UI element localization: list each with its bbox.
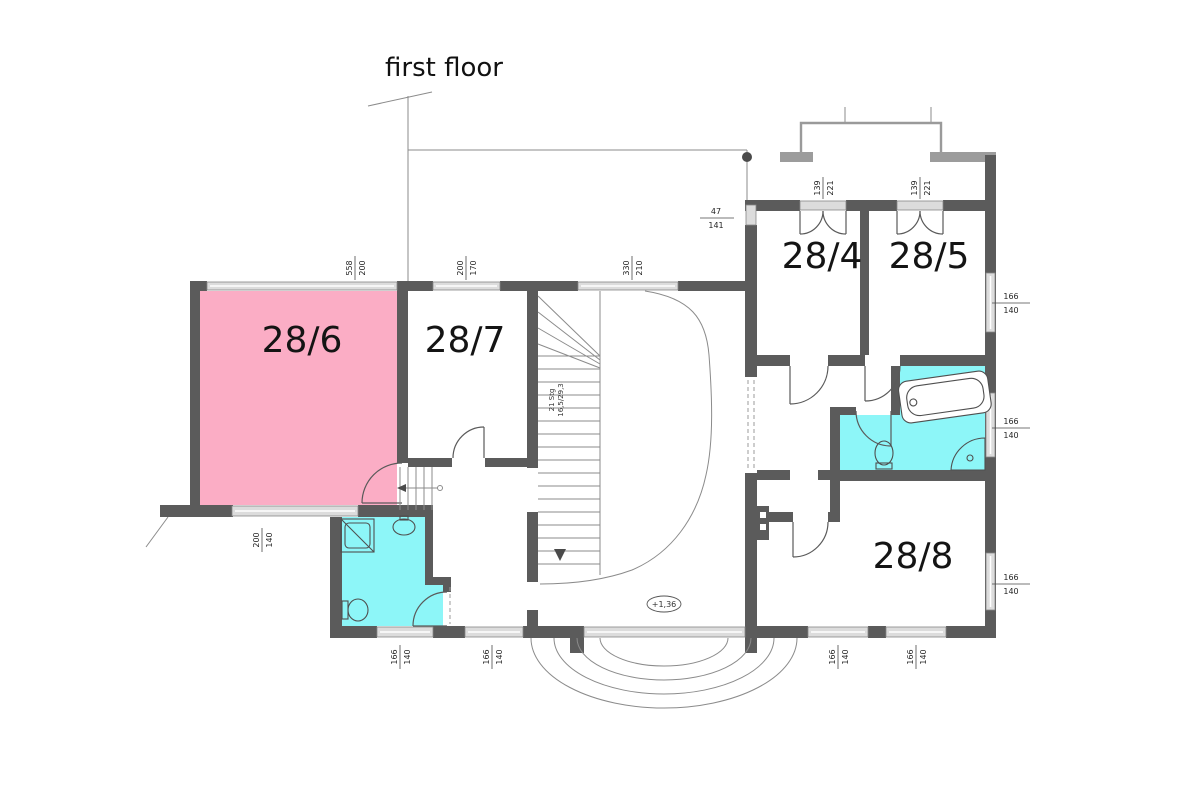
- door-swing-room288: [793, 522, 828, 557]
- svg-text:210: 210: [635, 260, 644, 275]
- wall-segment: [527, 291, 538, 468]
- door-swing-room287: [453, 427, 484, 458]
- svg-text:141: 141: [708, 221, 723, 230]
- wall-segment: [425, 517, 433, 581]
- svg-text:140: 140: [403, 649, 412, 664]
- dim-label: 200 170: [456, 256, 478, 280]
- french-door-threshold: [897, 201, 943, 210]
- svg-text:166: 166: [828, 649, 837, 664]
- svg-text:166: 166: [390, 649, 399, 664]
- room-label-284: 28/4: [782, 236, 863, 277]
- wall-segment: [900, 355, 985, 366]
- dim-label: 166 140: [482, 645, 504, 669]
- svg-text:166: 166: [906, 649, 915, 664]
- svg-text:166: 166: [1003, 417, 1018, 426]
- dim-label: 166 140: [992, 573, 1030, 596]
- page-title: first floor: [385, 53, 503, 83]
- wall-segment: [190, 291, 200, 517]
- wall-segment: [190, 281, 207, 291]
- stair-label: 21 Stg 16,5/29,3: [548, 383, 565, 417]
- svg-text:166: 166: [1003, 573, 1018, 582]
- wall-segment: [757, 355, 790, 366]
- svg-text:200: 200: [456, 260, 465, 275]
- stair-direction-arrow: [554, 549, 566, 561]
- svg-text:140: 140: [1003, 431, 1018, 440]
- dim-label: 139 221: [813, 177, 835, 199]
- wall-segment: [780, 152, 813, 162]
- svg-text:330: 330: [622, 260, 631, 275]
- wall-segment: [527, 512, 538, 582]
- window: [746, 205, 756, 225]
- floor-plan-page: first floor: [0, 0, 1200, 795]
- wall-segment: [828, 355, 865, 366]
- wall-segment: [500, 281, 578, 291]
- wall-segment: [830, 470, 996, 481]
- svg-text:166: 166: [482, 649, 491, 664]
- landing-stair: [397, 467, 443, 510]
- wall-segment: [397, 281, 433, 291]
- wall-segment: [408, 458, 452, 467]
- stair-direction-arrow: [397, 484, 406, 492]
- dashed-openings: [450, 380, 754, 624]
- elevation-marker: +1,36: [647, 596, 681, 612]
- chimney: [757, 506, 769, 540]
- wall-segment: [818, 470, 830, 480]
- svg-text:16,5/29,3: 16,5/29,3: [557, 383, 565, 417]
- svg-text:140: 140: [919, 649, 928, 664]
- dim-label: 47 141: [700, 207, 734, 230]
- french-door-threshold: [800, 201, 846, 210]
- wall-segment: [425, 577, 451, 585]
- wall-segment: [757, 626, 808, 638]
- dim-label: 558 200: [345, 256, 367, 280]
- dim-label: 166 140: [390, 645, 412, 669]
- room-label-286: 28/6: [262, 320, 343, 361]
- svg-text:140: 140: [841, 649, 850, 664]
- svg-text:221: 221: [826, 180, 835, 195]
- wall-segment: [678, 281, 747, 291]
- floor-plan-drawing: first floor: [0, 0, 1200, 795]
- chimney-flue: [760, 512, 766, 518]
- wall-segment: [860, 211, 869, 355]
- svg-text:558: 558: [345, 260, 354, 275]
- wall-segment: [846, 200, 897, 211]
- svg-text:140: 140: [1003, 587, 1018, 596]
- wall-segment: [745, 225, 757, 377]
- wall-segment: [397, 291, 408, 463]
- room-label-287: 28/7: [425, 320, 506, 361]
- wall-segment: [330, 517, 342, 626]
- wall-segment: [745, 473, 757, 628]
- wall-segment: [868, 626, 886, 638]
- room-label-285: 28/5: [889, 236, 970, 277]
- svg-text:170: 170: [469, 260, 478, 275]
- dim-label: 166 140: [992, 292, 1030, 315]
- chimney-flue: [760, 524, 766, 530]
- svg-text:166: 166: [1003, 292, 1018, 301]
- door-swing-room284: [790, 366, 828, 404]
- dim-label: 200 140: [252, 528, 274, 552]
- svg-text:200: 200: [252, 532, 261, 547]
- svg-text:140: 140: [1003, 306, 1018, 315]
- wall-segment: [830, 407, 840, 480]
- dim-label: 166 140: [992, 417, 1030, 440]
- wall-segment: [828, 512, 840, 522]
- downpipe-marker: [742, 152, 752, 162]
- staircase: 21 Stg 16,5/29,3: [538, 291, 712, 584]
- wall-segment: [330, 626, 377, 638]
- room-label-288: 28/8: [873, 536, 954, 577]
- wall-segment: [527, 610, 538, 627]
- wall-segment: [358, 505, 433, 517]
- wall-segment: [757, 470, 790, 480]
- light-walls: [780, 152, 996, 162]
- svg-text:139: 139: [910, 180, 919, 195]
- svg-text:140: 140: [265, 532, 274, 547]
- svg-text:47: 47: [711, 207, 721, 216]
- dim-label: 139 221: [910, 177, 932, 199]
- french-door-room284: [800, 211, 846, 234]
- svg-text:140: 140: [495, 649, 504, 664]
- french-door-room285: [897, 211, 943, 234]
- svg-text:21 Stg: 21 Stg: [548, 389, 556, 412]
- svg-text:+1,36: +1,36: [652, 600, 677, 609]
- wall-segment: [433, 626, 465, 638]
- balcony-parapet: [801, 123, 941, 152]
- svg-text:139: 139: [813, 180, 822, 195]
- dim-label: 166 140: [906, 645, 928, 669]
- wall-segment: [160, 505, 233, 517]
- dim-label: 330 210: [622, 256, 644, 280]
- svg-text:221: 221: [923, 180, 932, 195]
- dim-label: 166 140: [828, 645, 850, 669]
- stair-void-outline: [540, 291, 712, 584]
- svg-text:200: 200: [358, 260, 367, 275]
- wall-segment: [485, 458, 527, 467]
